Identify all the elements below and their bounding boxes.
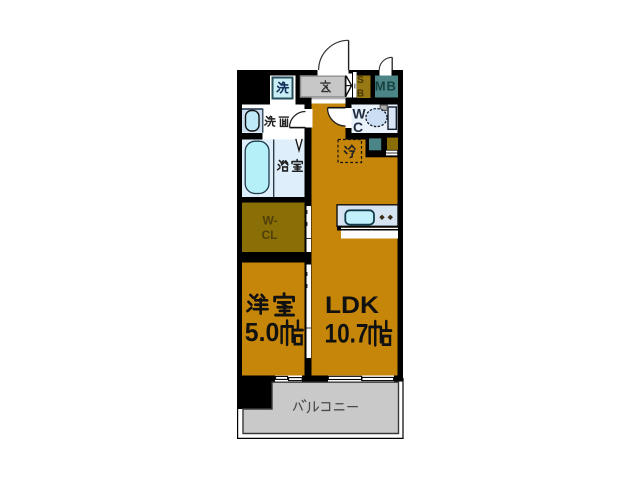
svg-text:S: S	[357, 75, 364, 86]
svg-text:C: C	[353, 119, 363, 135]
svg-text:W-: W-	[262, 214, 277, 228]
svg-text:B: B	[357, 89, 364, 100]
svg-text:LDK: LDK	[325, 292, 379, 319]
svg-text:5.0: 5.0	[245, 317, 279, 347]
svg-text:MB: MB	[375, 79, 397, 94]
svg-text:10.7: 10.7	[325, 319, 369, 349]
svg-text:CL: CL	[262, 228, 278, 242]
